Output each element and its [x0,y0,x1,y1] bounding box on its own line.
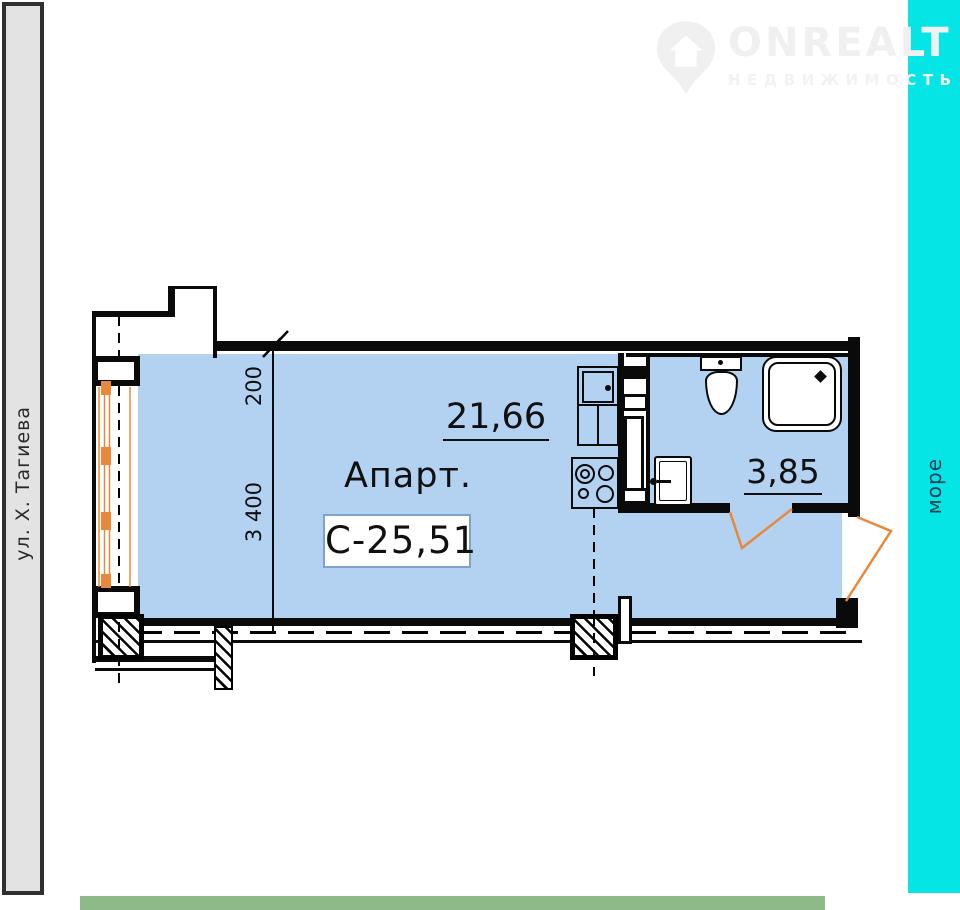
stove [571,457,619,509]
wall-bottom-dashes [98,631,858,634]
sea-label: море [922,378,946,514]
wall-segment [95,668,217,671]
onrealt-pin-icon [656,20,716,96]
window-mullions [101,381,111,588]
wall-stub-box [618,596,632,644]
stove-burner [598,465,614,481]
dimension-value: 3 400 [242,482,266,542]
centerline [118,622,120,688]
street-strip: ул. Х. Тагиева [2,2,44,895]
dimension-value: 200 [242,366,266,406]
stove-burner [596,485,614,503]
vent-shaft-box [624,416,644,498]
shower-tray-inner [768,362,836,426]
unit-number-box: С-25,51 [323,514,471,568]
bathroom-area-label: 3,85 [744,452,822,495]
wall-bathroom-bottom [792,503,850,513]
wall-right [848,337,860,517]
wall-bottom [98,618,858,626]
wall-bottom-outer [93,640,862,643]
wall-top [213,341,850,351]
counter-divider [597,404,599,446]
wall-segment [93,311,173,317]
vent-shaft-box [622,394,648,411]
street-label: ул. Х. Тагиева [12,336,34,561]
living-area-label: 21,66 [443,397,549,441]
centerline [118,386,120,586]
watermark-brand: ONREALT [728,20,957,66]
basin-faucet [657,480,671,483]
wall-segment [168,288,175,317]
dimension-line [272,341,274,633]
centerline [593,616,595,676]
toilet-button [718,360,723,365]
basin-faucet-dot [650,478,657,485]
panoramic-window [99,387,130,587]
bottom-strip [80,896,825,910]
onrealt-watermark: ONREALT НЕДВИЖИМОСТЬ [656,20,957,96]
stove-burner [578,488,589,499]
wall-stub [836,598,858,628]
watermark-subtitle: НЕДВИЖИМОСТЬ [728,70,957,90]
balcony-door-swing [846,517,891,601]
centerline [593,508,595,614]
vent-shaft-box [622,488,648,504]
page: ул. Х. Тагиева море ONREALT НЕДВИЖИМОСТЬ [0,0,960,910]
wall-segment [168,286,216,289]
vent-shaft-block [618,366,650,379]
sink-faucet-dot [605,385,611,391]
apartment-label: Апарт. [338,456,478,496]
window-pier-top [92,356,140,386]
centerline [118,316,120,360]
hatched-wall-section [214,626,233,690]
hatched-column [98,614,144,660]
stove-burner-inner [580,469,590,479]
sea-strip: море [908,0,960,893]
hallway-fill [620,508,842,620]
